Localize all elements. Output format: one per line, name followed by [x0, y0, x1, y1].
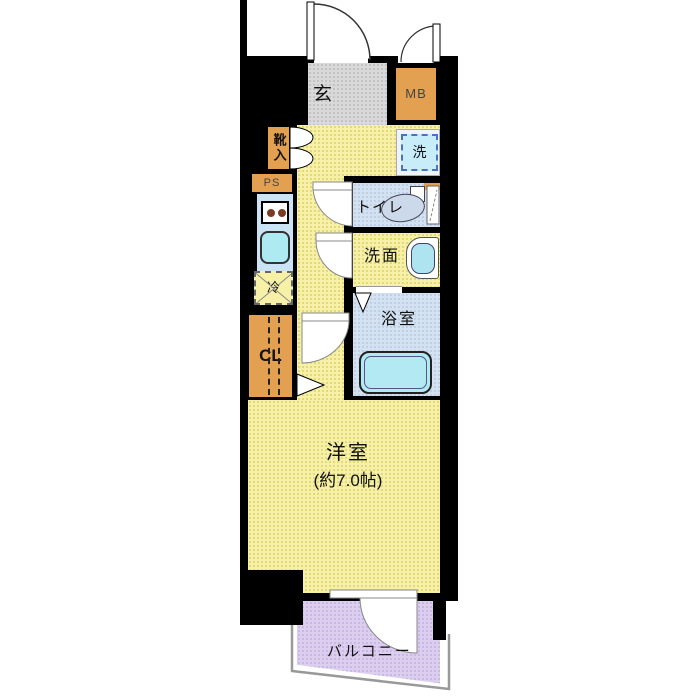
main-room-label: 洋室: [288, 442, 408, 464]
meter-box: MB: [395, 67, 437, 121]
floor-plan: MB 洗 靴入 PS 冷 CL: [0, 0, 700, 700]
wall-hall-east: [344, 176, 353, 404]
shoe-cabinet-label: 靴入: [271, 133, 285, 163]
pipe-space: PS: [251, 173, 293, 193]
mb-door-opening: [398, 56, 434, 63]
closet-dash-1: [268, 317, 270, 395]
stove-icon: [261, 201, 289, 224]
balcony-label: バルコニー: [327, 644, 412, 661]
entrance-door-opening: [314, 56, 368, 63]
washroom-label: 洗面: [364, 248, 400, 266]
wall-right-stub: [433, 593, 446, 640]
entrance-door-arc-icon: [314, 4, 370, 60]
washer-box: 洗: [401, 134, 438, 171]
wall-foot-bottom-left: [240, 570, 303, 625]
washer-label: 洗: [413, 145, 427, 160]
closet-dash-2: [278, 317, 280, 395]
kitchen-sink-icon: [260, 231, 290, 264]
closet: CL: [248, 314, 293, 398]
bathtub-icon: [359, 351, 432, 394]
entrance-door-leaf-icon: [307, 2, 314, 60]
burner-right: [278, 209, 286, 217]
toilet-pipe-strip: [424, 183, 440, 190]
refrigerator-space: 冷: [254, 271, 293, 305]
room-main: [248, 400, 440, 593]
wall-top-left-notch: [240, 0, 247, 58]
genkan-label: 玄: [313, 85, 332, 106]
meter-box-label: MB: [405, 87, 427, 101]
bathroom-label: 浴室: [381, 311, 417, 329]
pipe-space-label: PS: [264, 177, 281, 189]
wall-toilet-top: [344, 176, 457, 183]
burner-left: [267, 209, 275, 217]
bathtub-inner-line: [364, 356, 427, 389]
main-room-size-label: (約7.0帖): [288, 472, 408, 491]
toilet-label: トイレ: [356, 200, 404, 217]
washbasin-bowl-icon: [411, 243, 435, 274]
shoe-cabinet: 靴入: [267, 126, 290, 170]
